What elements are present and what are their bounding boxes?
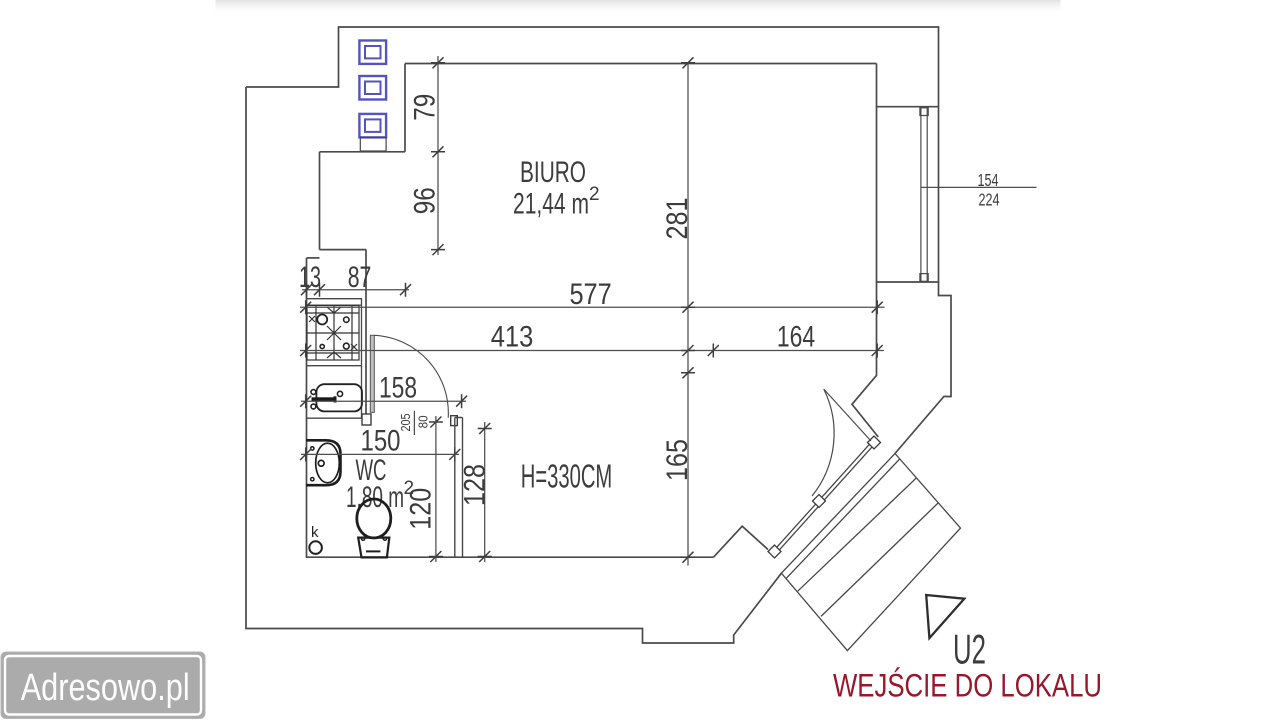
svg-text:224: 224	[979, 190, 1000, 210]
svg-text:U2: U2	[953, 626, 986, 673]
svg-text:79: 79	[409, 94, 442, 121]
svg-text:H=330CM: H=330CM	[521, 458, 613, 495]
svg-text:80: 80	[417, 415, 431, 428]
svg-text:120: 120	[405, 488, 438, 530]
svg-text:87: 87	[348, 261, 372, 294]
svg-text:BIURO: BIURO	[520, 156, 586, 189]
svg-text:WEJŚCIE DO LOKALU: WEJŚCIE DO LOKALU	[833, 668, 1102, 704]
svg-text:154: 154	[978, 170, 999, 190]
svg-text:128: 128	[459, 464, 492, 506]
svg-text:577: 577	[569, 278, 611, 311]
svg-text:Adresowo.pl: Adresowo.pl	[21, 667, 190, 709]
svg-text:21,44 m: 21,44 m	[513, 188, 589, 221]
svg-text:413: 413	[491, 321, 534, 354]
svg-text:13: 13	[299, 261, 321, 294]
svg-text:2: 2	[589, 184, 600, 205]
svg-text:165: 165	[661, 439, 694, 481]
svg-text:164: 164	[777, 321, 815, 354]
svg-text:205: 205	[399, 413, 413, 431]
svg-text:96: 96	[409, 187, 442, 214]
svg-text:1,80 m: 1,80 m	[346, 481, 404, 514]
svg-text:158: 158	[379, 372, 417, 405]
svg-text:150: 150	[361, 425, 401, 458]
svg-text:k: k	[311, 524, 319, 541]
svg-text:281: 281	[661, 198, 694, 240]
